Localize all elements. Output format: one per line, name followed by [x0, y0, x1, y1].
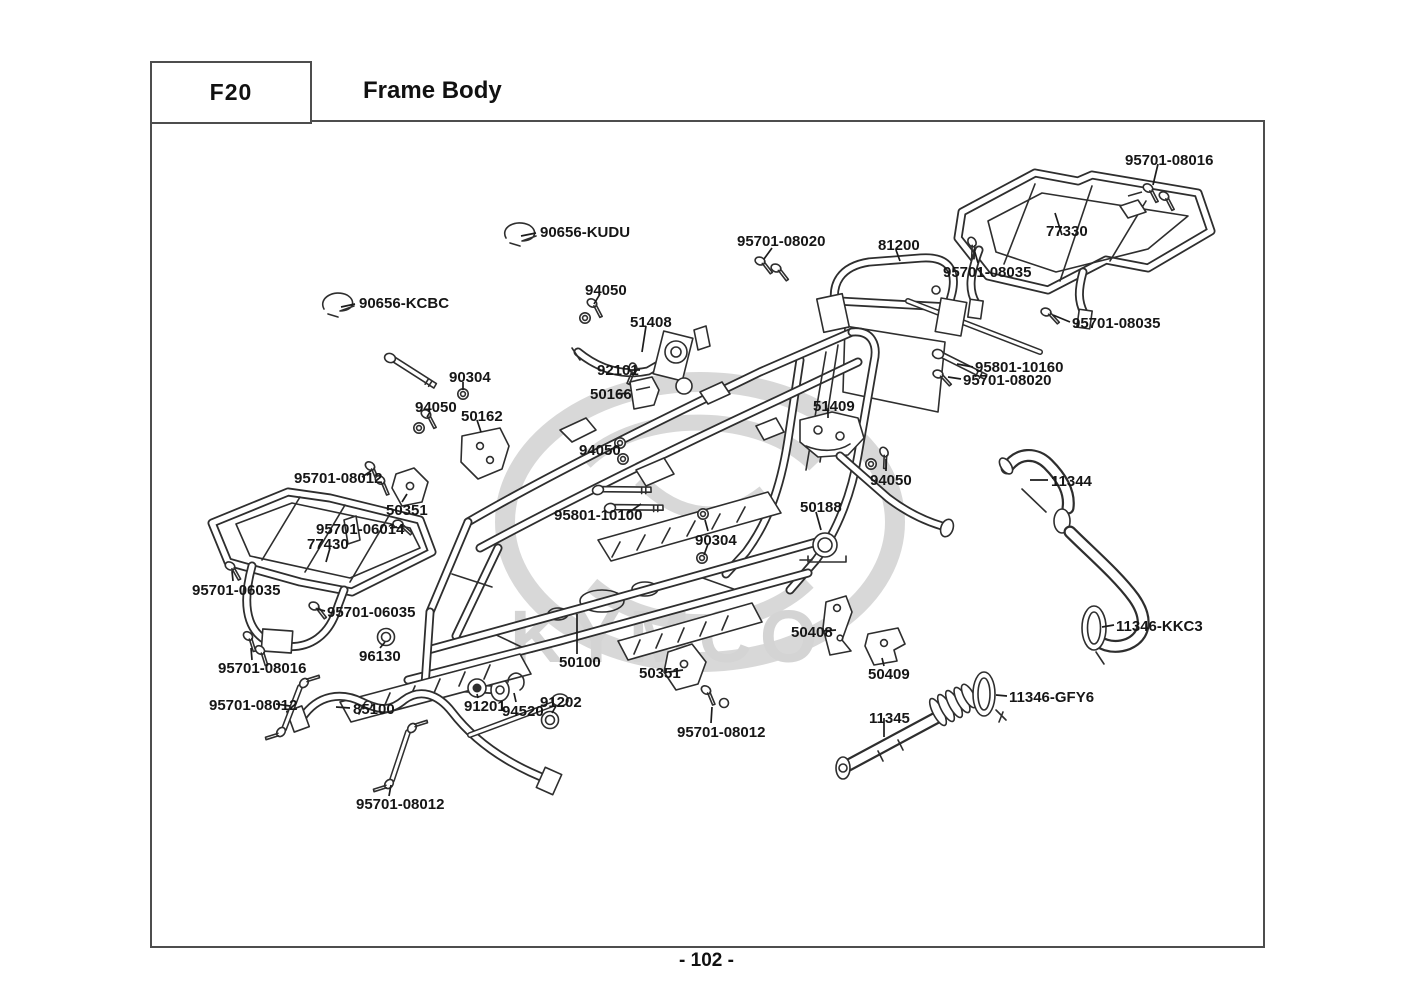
part-label: 94050: [579, 443, 621, 458]
part-label: 94050: [585, 283, 627, 298]
part-label: 50351: [386, 503, 428, 518]
part-label: 95701-06035: [192, 583, 280, 598]
part-label: 77330: [1046, 224, 1088, 239]
part-label: 11346-GFY6: [1009, 690, 1094, 705]
part-label: 96130: [359, 649, 401, 664]
part-label: 95701-08012: [677, 725, 765, 740]
part-label: 90656-KCBC: [359, 296, 449, 311]
part-label: 90304: [695, 533, 737, 548]
part-label: 11344: [1051, 474, 1092, 489]
part-label: 90656-KUDU: [540, 225, 630, 240]
part-label: 95701-06014: [316, 522, 404, 537]
part-label: 95701-08020: [963, 373, 1051, 388]
part-label: 11346-KKC3: [1116, 619, 1203, 634]
part-label: 95701-08012: [356, 797, 444, 812]
section-code: F20: [210, 79, 253, 106]
part-label: 90304: [449, 370, 491, 385]
part-label: 92101: [597, 363, 639, 378]
section-code-box: F20: [150, 61, 312, 124]
part-label: 91202: [540, 695, 582, 710]
part-label: 95701-08012: [209, 698, 297, 713]
part-label: 51409: [813, 399, 855, 414]
part-label: 94050: [415, 400, 457, 415]
part-label: 11345: [869, 711, 910, 726]
part-label: 50408: [791, 625, 833, 640]
part-label: 50166: [590, 387, 632, 402]
part-label: 50100: [559, 655, 601, 670]
part-label: 95801-10100: [554, 508, 642, 523]
catalog-page: F20 Frame Body: [0, 0, 1415, 1000]
part-label: 95701-08035: [943, 265, 1031, 280]
part-label: 85100: [353, 702, 395, 717]
part-label: 94520: [502, 704, 544, 719]
part-label: 50351: [639, 666, 681, 681]
part-label: 91201: [464, 699, 506, 714]
part-label: 95701-08035: [1072, 316, 1160, 331]
part-label: 95701-08016: [218, 661, 306, 676]
part-label: 51408: [630, 315, 672, 330]
part-label: 77430: [307, 537, 349, 552]
part-label: 95701-08012: [294, 471, 382, 486]
part-label: 94050: [870, 473, 912, 488]
part-label: 95701-08020: [737, 234, 825, 249]
page-title: Frame Body: [363, 77, 502, 105]
part-label: 95701-08016: [1125, 153, 1213, 168]
part-label: 50188: [800, 500, 842, 515]
page-number: - 102 -: [150, 950, 1263, 972]
labels-layer: 90656-KUDU90656-KCBC94050514089210150166…: [0, 0, 1415, 1000]
part-label: 95701-06035: [327, 605, 415, 620]
part-label: 50162: [461, 409, 503, 424]
part-label: 50409: [868, 667, 910, 682]
part-label: 81200: [878, 238, 920, 253]
